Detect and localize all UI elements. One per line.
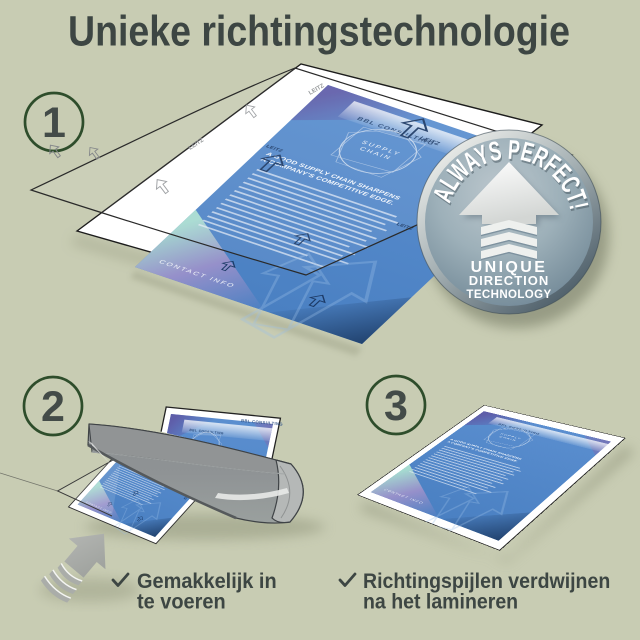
svg-text:te voeren: te voeren xyxy=(137,590,226,614)
svg-text:Richtingspijlen verdwijnen: Richtingspijlen verdwijnen xyxy=(363,570,610,593)
svg-text:TECHNOLOGY: TECHNOLOGY xyxy=(466,289,551,301)
svg-text:DIRECTION: DIRECTION xyxy=(469,273,550,288)
svg-text:na het lamineren: na het lamineren xyxy=(363,591,518,614)
svg-text:1: 1 xyxy=(42,99,66,147)
svg-text:Unieke richtingstechnologie: Unieke richtingstechnologie xyxy=(68,6,570,55)
svg-text:3: 3 xyxy=(384,382,408,430)
svg-text:2: 2 xyxy=(41,383,65,431)
